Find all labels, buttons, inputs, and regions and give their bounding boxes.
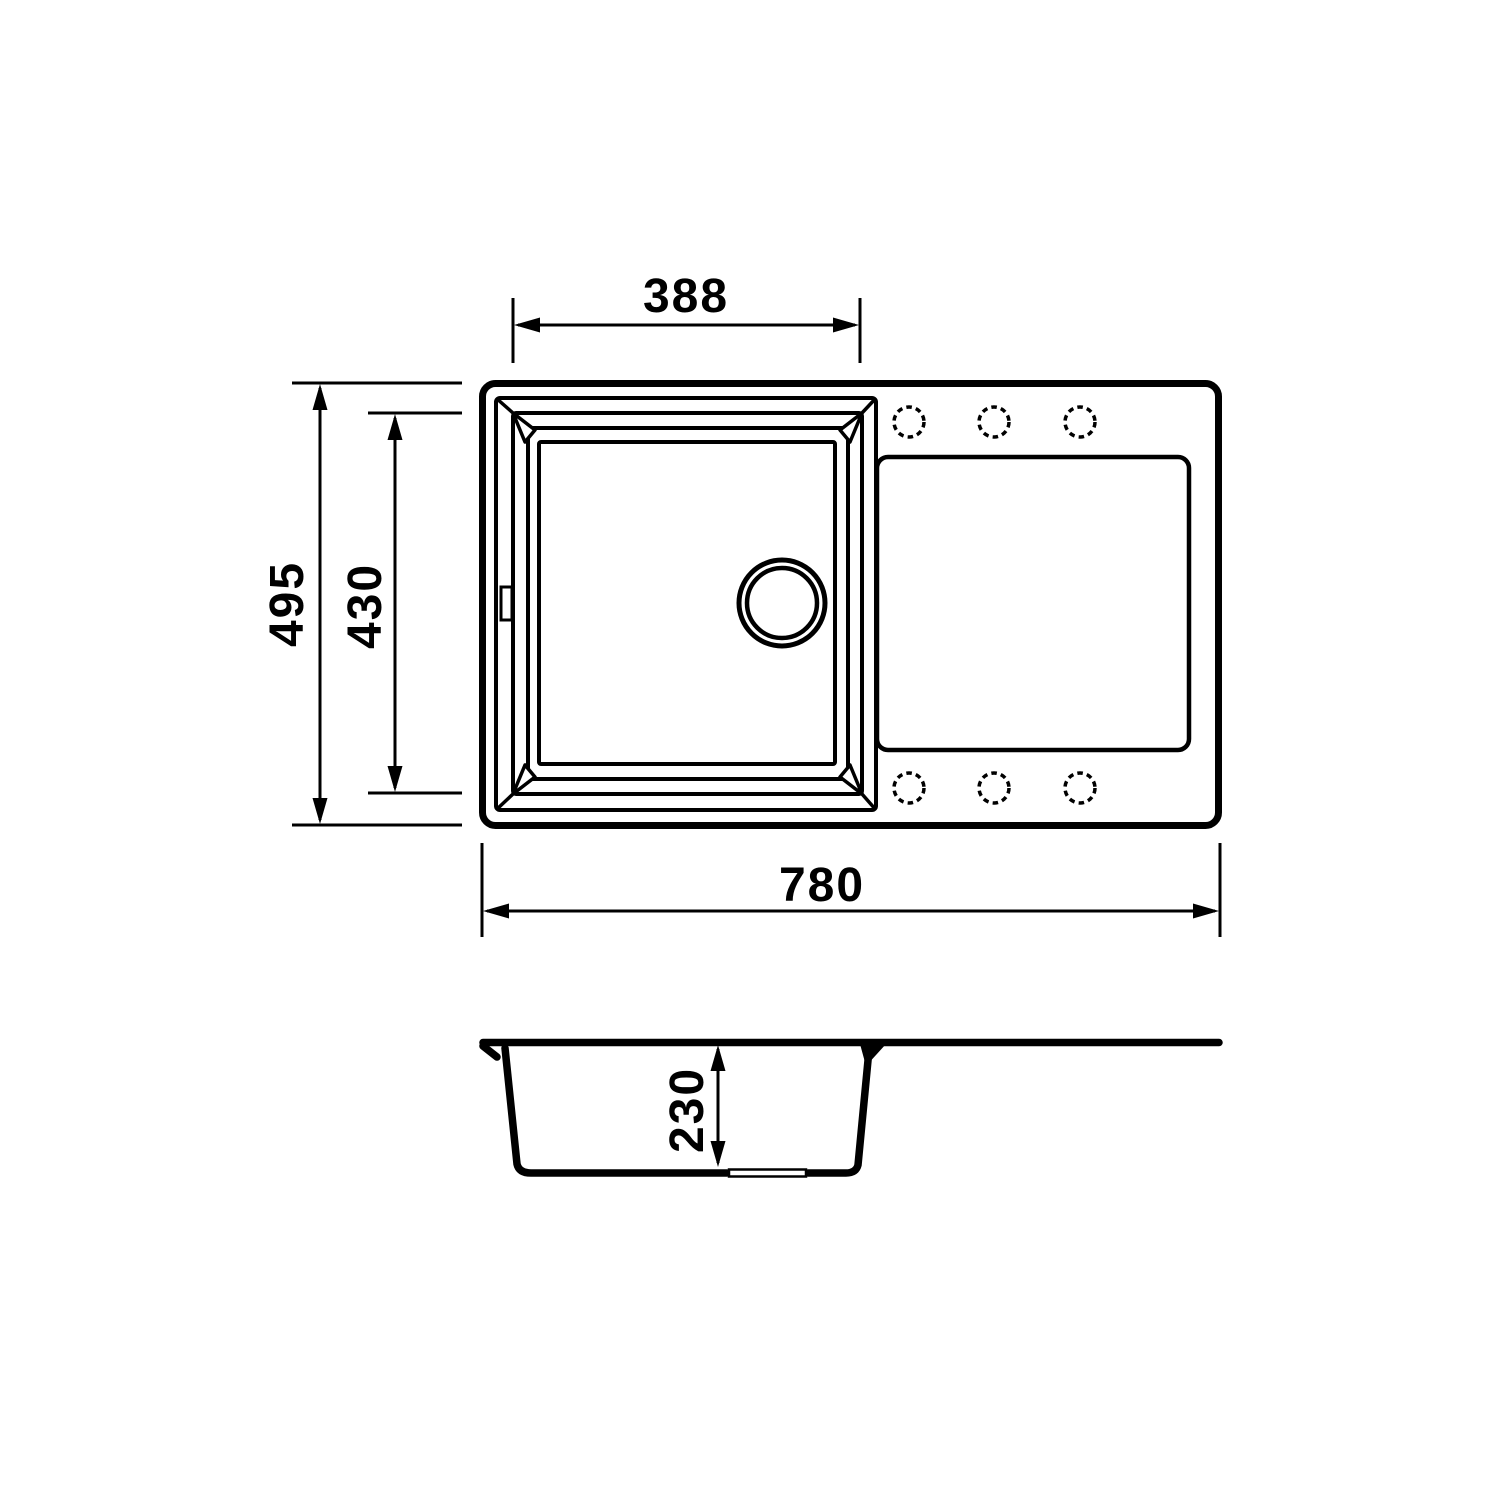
section-drain-outlet [729,1170,806,1177]
dim-430-label: 430 [339,563,392,649]
dim-388-label: 388 [643,270,729,323]
dim-495-label: 495 [261,561,314,647]
section-view: 230 [483,1043,1219,1177]
dimension-overall-width: 780 [482,843,1220,937]
dim-780-label: 780 [779,859,865,912]
section-front-lip [483,1046,497,1057]
overflow-slot [501,587,512,620]
dimension-bowl-width: 388 [513,270,860,363]
dimension-bowl-height: 230 [661,1045,726,1167]
drawing-canvas: 388 495 430 780 [0,0,1500,1500]
sink-outline [483,384,1219,826]
top-view [483,384,1219,826]
dimension-bowl-depth: 430 [339,413,462,793]
section-wall-flare [860,1044,886,1066]
sink-technical-drawing: 388 495 430 780 [0,0,1500,1500]
section-bowl-right-wall [808,1050,869,1173]
dim-230-label: 230 [661,1067,714,1153]
